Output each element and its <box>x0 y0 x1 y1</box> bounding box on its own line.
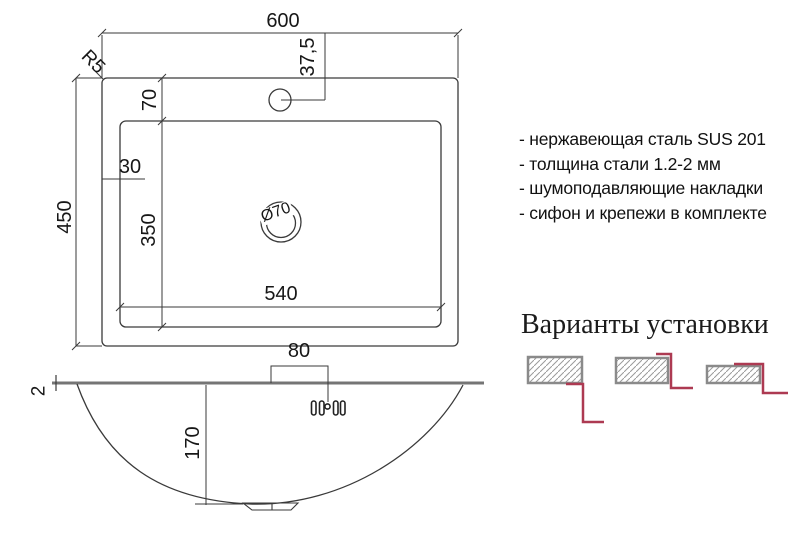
dim-label-overflow-offset: 80 <box>288 341 310 361</box>
countertop-section-2 <box>616 358 668 383</box>
technical-drawing <box>0 0 800 533</box>
sink-edge-profile-1 <box>566 384 604 422</box>
dim-label-steel-thickness: 2 <box>30 386 49 397</box>
spec-note-material: - нержавеющая сталь SUS 201 <box>519 127 767 152</box>
dim-line-450 <box>76 78 102 346</box>
dim-label-bowl-depth-front: 350 <box>139 213 159 246</box>
spec-note-thickness: - толщина стали 1.2-2 мм <box>519 152 767 177</box>
countertop-section-3 <box>707 366 760 383</box>
spec-note-sound-pads: - шумоподавляющие накладки <box>519 176 767 201</box>
dim-label-width: 600 <box>266 11 299 31</box>
side-view <box>52 366 484 510</box>
dim-label-bowl-width: 540 <box>264 284 297 304</box>
spec-notes: - нержавеющая сталь SUS 201 - толщина ст… <box>519 127 767 225</box>
bowl-profile-curve <box>77 384 463 504</box>
installation-option-undermount <box>528 357 604 422</box>
installation-option-overmount <box>616 354 693 388</box>
installation-options-title: Варианты установки <box>521 309 769 341</box>
overflow-holes <box>312 401 346 415</box>
dim-label-faucet-offset: 37,5 <box>298 38 318 77</box>
dim-label-bowl-depth: 170 <box>183 426 203 459</box>
installation-option-flush <box>707 364 788 393</box>
sink-spec-sheet: 600 450 70 30 350 540 37,5 R5 Ø70 80 170… <box>0 0 800 533</box>
dim-line-600 <box>102 33 458 78</box>
countertop-section-1 <box>528 357 582 383</box>
dim-label-rear-deck: 70 <box>140 89 160 111</box>
installation-diagrams <box>528 354 788 422</box>
spec-note-included: - сифон и крепежи в комплекте <box>519 201 767 226</box>
dim-label-height: 450 <box>55 200 75 233</box>
dim-label-side-deck: 30 <box>119 157 141 177</box>
